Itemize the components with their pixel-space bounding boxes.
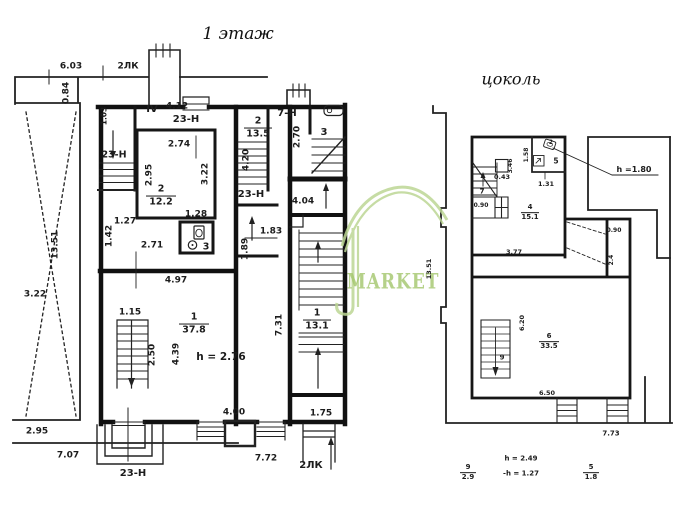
dim-label: 2.95: [26, 428, 48, 437]
dim-label: 1.58: [524, 148, 530, 163]
dim-label: 4.00: [223, 409, 245, 418]
room-number: 2: [255, 117, 262, 127]
dim-label: 2ЛК: [117, 63, 138, 72]
sink-icon: [188, 241, 196, 249]
dim-label: 2ЛК: [299, 461, 322, 471]
courtyard-dashed-lines: [26, 112, 76, 416]
dim-label: 13.51: [426, 259, 433, 280]
dim-label: 7-Н: [277, 109, 296, 119]
room-number: 1: [191, 313, 198, 323]
room-number-area: 137.8: [179, 313, 209, 336]
floor1-title: 1 этаж: [202, 24, 273, 44]
sink-icon: [534, 156, 545, 167]
dim-label: 2.95: [146, 164, 155, 186]
room-number-area: 213.5: [244, 117, 272, 140]
stairs-topleft: [100, 163, 133, 183]
room-area: 37.8: [182, 326, 205, 336]
dim-label: 4.97: [165, 277, 187, 286]
room-area: 12.2: [149, 198, 172, 208]
dim-label: 13.51: [52, 231, 61, 259]
dim-label: 0.84: [63, 82, 72, 104]
room-number: 1: [314, 309, 321, 319]
dim-label: 1.27: [114, 218, 136, 227]
dim-label: 2.4: [609, 255, 615, 266]
dim-label: 1.31: [538, 181, 554, 188]
dim-label: 1.03: [100, 107, 108, 126]
dim-label: 3.46: [508, 159, 514, 174]
dim-label: 2: [549, 140, 553, 146]
room-area: 33.5: [540, 344, 557, 351]
room-area: 1.8: [585, 475, 597, 482]
dim-label: 1.42: [106, 225, 115, 247]
room-number: 6: [547, 333, 552, 340]
dim-label: 4.04: [292, 198, 314, 207]
dim-label: 7.73: [602, 431, 619, 438]
room-number-area: 92.9: [460, 464, 476, 482]
dim-label: 2.50: [149, 344, 158, 366]
dim-label: 0.90: [474, 203, 489, 209]
dim-label: 5: [553, 157, 558, 165]
room-number-area: 51.8: [583, 464, 599, 482]
watermark-umbrella-icon: [337, 187, 447, 314]
dim-label: 3: [321, 128, 328, 138]
floorplan-canvas: 1 этаж цоколь MARKET 6.032ЛК0.841.03IV4.…: [0, 0, 700, 515]
dim-label: 1.15: [119, 309, 141, 318]
stairs-bigroom: [117, 320, 148, 388]
dim-label: 6.03: [60, 63, 82, 72]
dim-label: 3.77: [506, 249, 522, 256]
room-number-area: 113.1: [303, 309, 331, 332]
dim-label: 2.71: [141, 242, 163, 251]
dim-label: 23-Н: [101, 150, 126, 160]
room-number: 9: [466, 464, 471, 471]
dim-label: 7.31: [276, 314, 285, 336]
plan-linework: [0, 0, 700, 515]
dim-label: 2.70: [294, 126, 303, 148]
room-number: 2: [158, 185, 165, 195]
room-number-area: 212.2: [146, 185, 176, 208]
dim-label: 4.20: [243, 149, 252, 171]
dim-label: h = 2.49: [505, 456, 538, 463]
dim-label: 1.75: [310, 410, 332, 419]
dim-label: -h = 1.27: [503, 471, 539, 478]
toilet-icon: [194, 226, 204, 239]
room-area: 13.5: [246, 130, 269, 140]
dim-label: 3: [203, 242, 210, 252]
plan-basement: [433, 106, 672, 423]
dim-label: 6.20: [519, 315, 526, 331]
dim-label: 4.39: [173, 343, 182, 365]
basement-title: цоколь: [482, 70, 541, 89]
dim-label: 7: [480, 189, 485, 196]
dim-label: IV: [146, 105, 157, 115]
stairwell-treads: [299, 233, 344, 352]
dim-label: 23-Н: [120, 469, 146, 479]
dim-label: 1.83: [260, 228, 282, 237]
dim-label: 3.22: [202, 163, 211, 185]
room-area: 13.1: [305, 322, 328, 332]
dim-label: 2.74: [168, 141, 190, 150]
room-number: 4: [528, 204, 533, 211]
basement-porch-steps: [557, 398, 628, 423]
dim-label: 7.72: [255, 455, 277, 464]
dim-label: 9: [500, 355, 505, 362]
dim-label: h =1.80: [617, 166, 652, 174]
room-number: 5: [589, 464, 594, 471]
room-number-area: 633.5: [539, 333, 559, 351]
dim-label: 23-Н: [238, 190, 264, 200]
dim-label: 1.89: [242, 238, 251, 260]
room-area: 15.1: [521, 215, 538, 222]
dim-label: 23-Н: [173, 115, 199, 125]
dim-label: 7.07: [57, 452, 79, 461]
dim-label: h = 2.76: [196, 352, 246, 363]
dim-label: 4.12: [166, 103, 188, 112]
dim-label: 0.43: [494, 174, 510, 181]
room-number-area: 415.1: [521, 204, 539, 222]
dim-label: 6.50: [539, 390, 555, 397]
dim-label: 0.90: [607, 228, 622, 234]
dim-label: 1.28: [185, 211, 207, 220]
room-area: 2.9: [462, 475, 474, 482]
dim-label: 3.22: [24, 291, 46, 300]
porch-nested-steps: [97, 425, 163, 464]
